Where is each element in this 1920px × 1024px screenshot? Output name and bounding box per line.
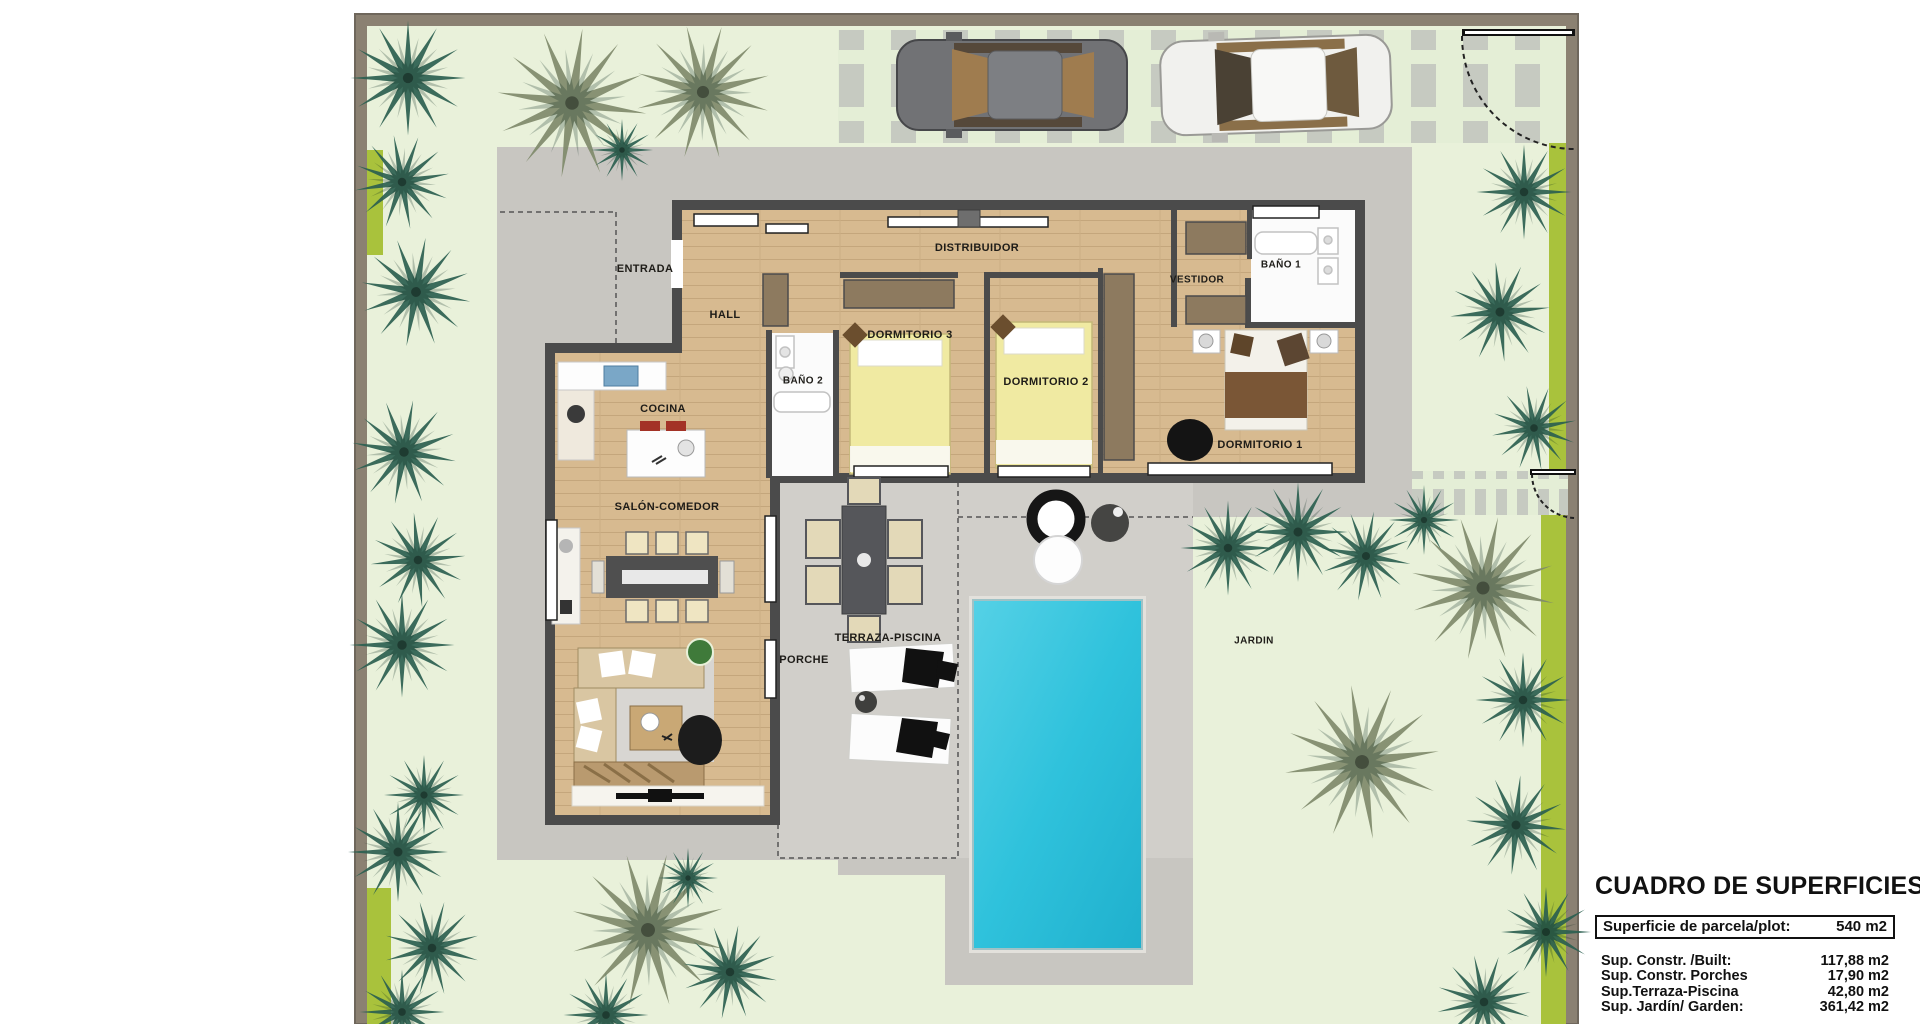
bed-dorm3 <box>842 322 950 474</box>
roof-pillar <box>958 210 980 227</box>
surface-row-porches: Sup. Constr. Porches 17,90 m2 <box>1601 969 1889 984</box>
surface-row-value: 361,42 m2 <box>1820 1000 1889 1015</box>
room-label-bano1: BAÑO 1 <box>1261 260 1301 271</box>
surfaces-table: CUADRO DE SUPERFICIES Superficie de parc… <box>1595 872 1895 1016</box>
surface-row-value: 42,80 m2 <box>1828 985 1889 1000</box>
room-label-dormitorio3: DORMITORIO 3 <box>867 329 952 341</box>
room-label-dormitorio2: DORMITORIO 2 <box>1003 376 1088 388</box>
room-label-porche: PORCHE <box>779 654 828 666</box>
surfaces-rows: Sup. Constr. /Built: 117,88 m2 Sup. Cons… <box>1595 954 1895 1016</box>
room-label-bano2: BAÑO 2 <box>783 376 823 387</box>
room-label-vestidor: VESTIDOR <box>1170 275 1224 286</box>
parcel-surface-value: 540 m2 <box>1836 918 1887 935</box>
surface-row-label: Sup. Jardín/ Garden: <box>1601 1000 1744 1015</box>
car-white <box>1159 26 1393 144</box>
room-label-terraza: TERRAZA-PISCINA <box>835 632 942 644</box>
room-label-distribuidor: DISTRIBUIDOR <box>935 242 1019 254</box>
room-label-salon: SALÓN-COMEDOR <box>615 501 720 513</box>
car-gray <box>897 32 1127 138</box>
swimming-pool <box>969 596 1146 953</box>
surface-row-label: Sup. Constr. /Built: <box>1601 954 1732 969</box>
surface-row-jardin: Sup. Jardín/ Garden: 361,42 m2 <box>1601 1000 1889 1015</box>
surface-row-value: 117,88 m2 <box>1820 954 1889 969</box>
room-label-hall: HALL <box>710 309 741 321</box>
surface-row-built: Sup. Constr. /Built: 117,88 m2 <box>1601 954 1889 969</box>
surface-row-label: Sup.Terraza-Piscina <box>1601 985 1739 1000</box>
site-plan-drawing <box>0 0 1920 1024</box>
bed-dorm2 <box>990 314 1092 468</box>
parcel-surface-label: Superficie de parcela/plot: <box>1603 918 1791 935</box>
surface-row-label: Sup. Constr. Porches <box>1601 969 1748 984</box>
surface-row-value: 17,90 m2 <box>1828 969 1889 984</box>
surface-row-terraza: Sup.Terraza-Piscina 42,80 m2 <box>1601 985 1889 1000</box>
room-label-cocina: COCINA <box>640 403 686 415</box>
room-label-dormitorio1: DORMITORIO 1 <box>1217 439 1302 451</box>
room-label-jardin: JARDIN <box>1234 636 1274 647</box>
surfaces-table-title: CUADRO DE SUPERFICIES <box>1595 872 1895 901</box>
parcel-surface-row: Superficie de parcela/plot: 540 m2 <box>1595 915 1895 939</box>
room-label-entrada: ENTRADA <box>617 263 674 275</box>
